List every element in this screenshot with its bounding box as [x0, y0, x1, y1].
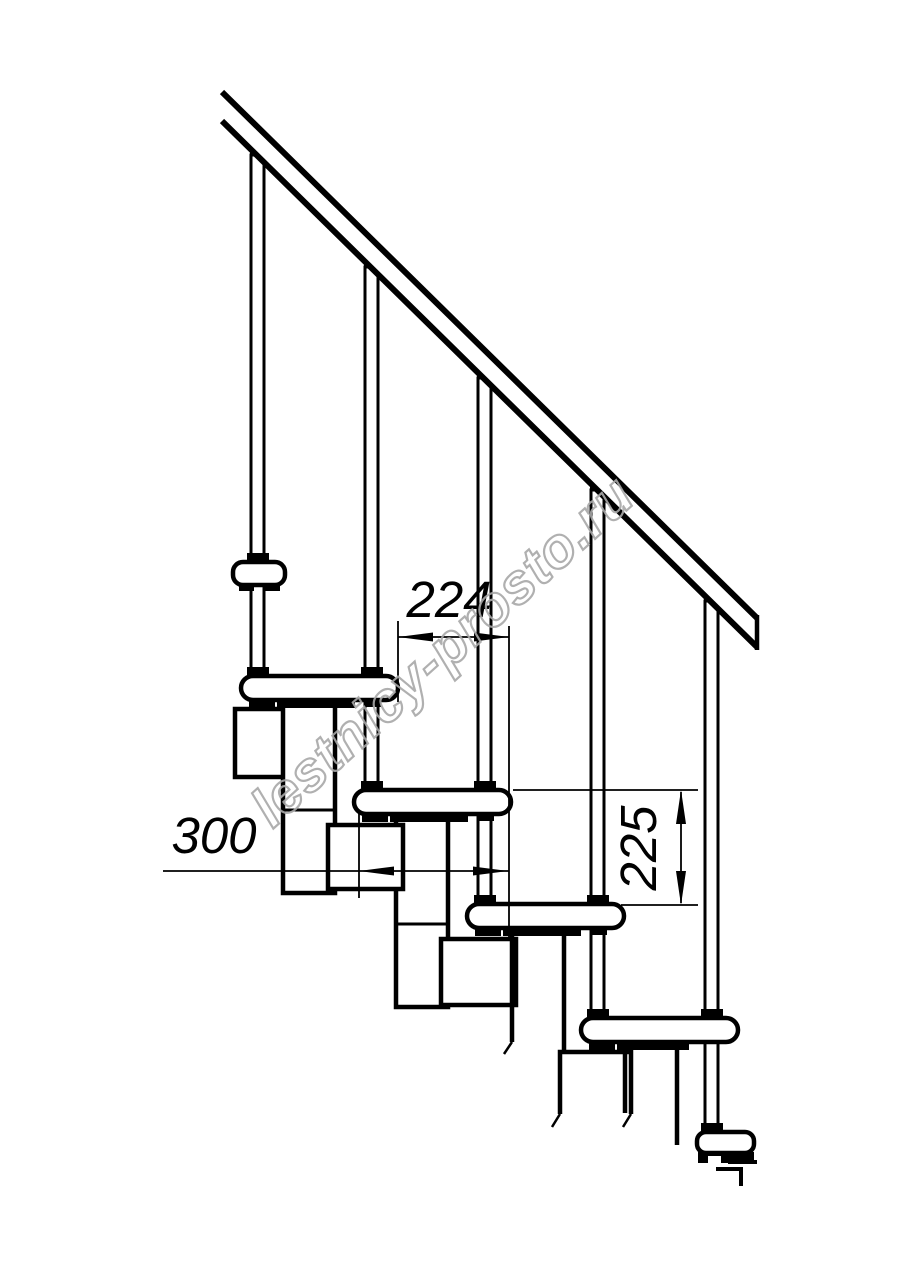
floor-break-lines: [716, 1162, 757, 1186]
arrowhead-down: [676, 871, 686, 905]
module-square-2: [441, 939, 516, 1005]
break-tick: [552, 1114, 631, 1127]
arrowhead-up: [676, 790, 686, 824]
baluster-5: [705, 601, 718, 1133]
baluster-4: [591, 490, 604, 1018]
dimension-label-tread-depth: 300: [171, 807, 256, 864]
tread-4: [581, 1018, 738, 1042]
module-column-3: [512, 931, 564, 1114]
tread-3: [467, 904, 624, 928]
break-tick: [504, 1042, 512, 1054]
tread-end-view: [233, 562, 285, 585]
module-square-1: [328, 825, 403, 889]
baluster-1: [251, 155, 264, 676]
watermark-text: lestnicy-prosto.ru: [238, 463, 645, 838]
floor-mount-plate: [697, 1132, 754, 1153]
tread-2: [354, 790, 511, 814]
dimension-label-step-rise: 225: [610, 805, 667, 892]
staircase-drawing-page: 224 300 225 lestnicy-prosto.ru: [0, 0, 914, 1280]
staircase-technical-drawing: 224 300 225 lestnicy-prosto.ru: [0, 0, 914, 1280]
module-square-3: [560, 1052, 631, 1114]
